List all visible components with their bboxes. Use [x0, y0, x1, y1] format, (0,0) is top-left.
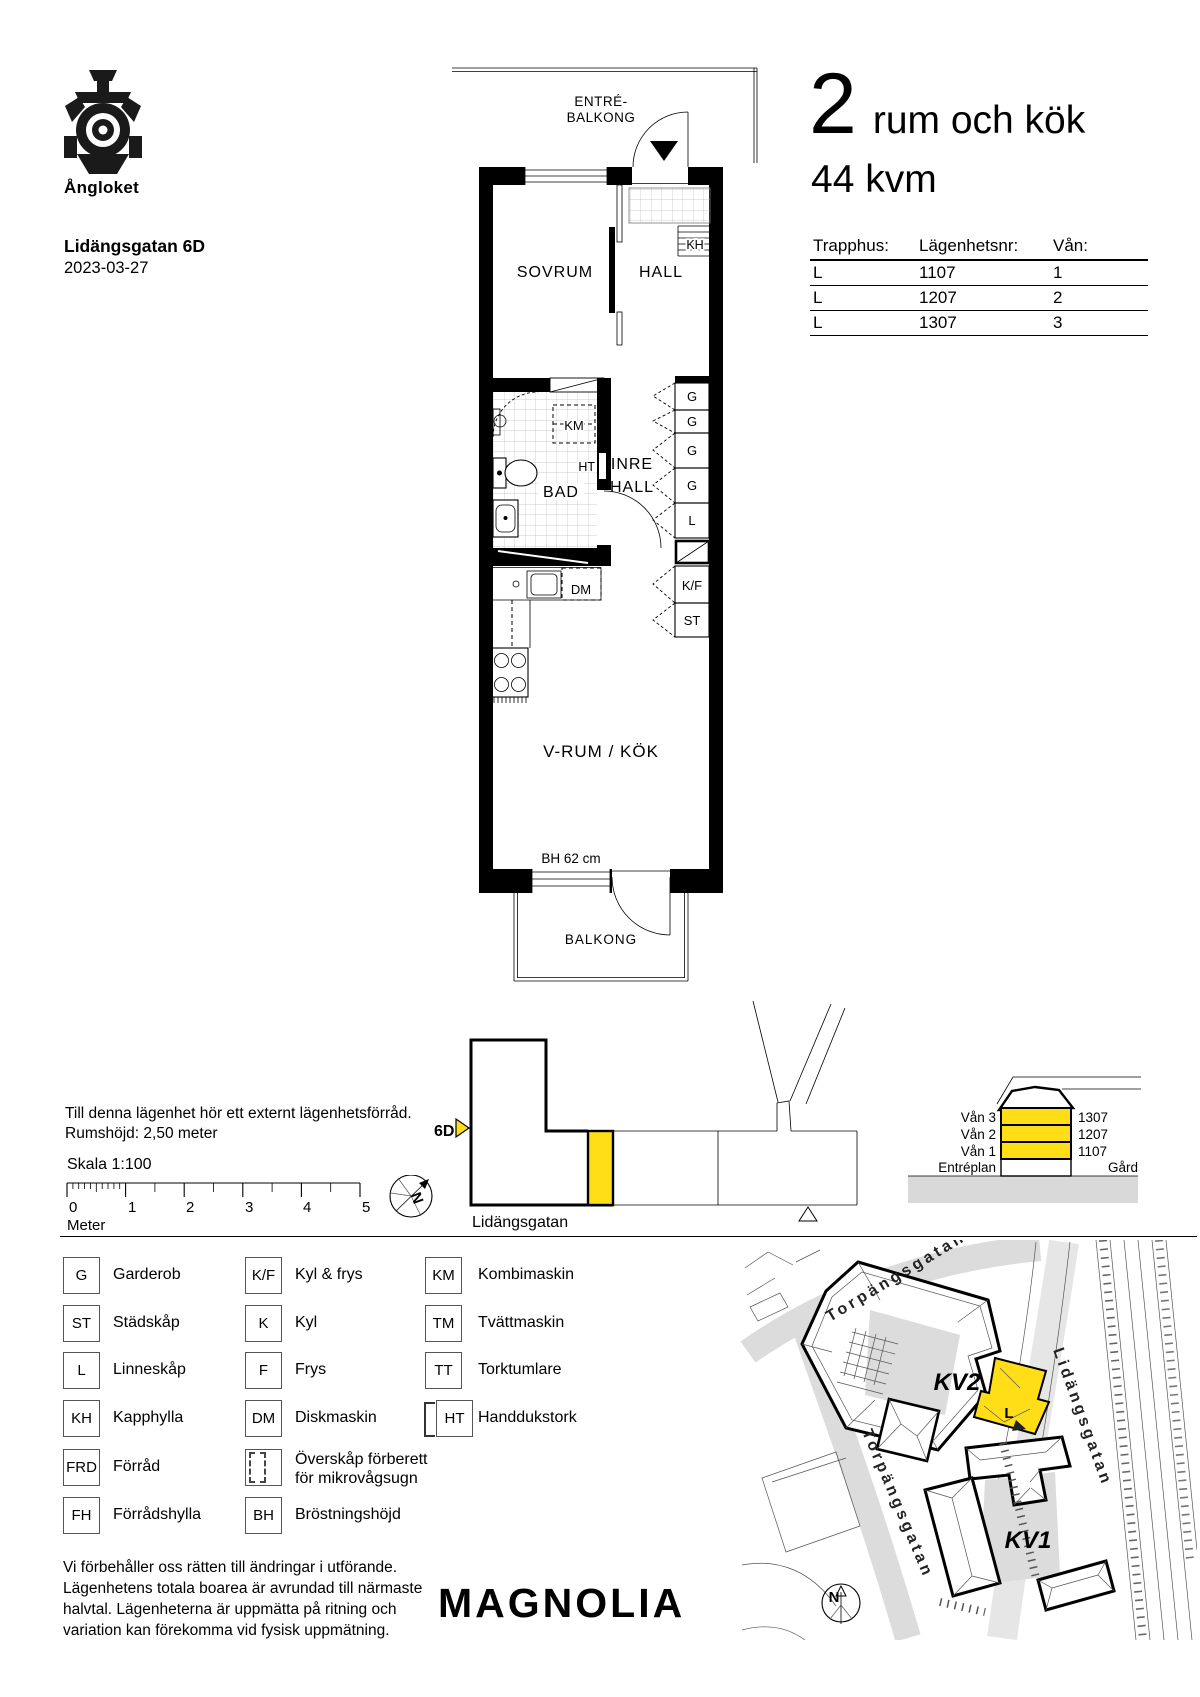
symbol: DM: [252, 1410, 275, 1427]
legend-symbol-box: ST: [63, 1305, 100, 1342]
entrance-triangle-marker: [799, 1207, 817, 1221]
legend-label: Kyl: [295, 1314, 317, 1332]
entrance-level: [1001, 1159, 1071, 1176]
yard-label: Gård: [1108, 1160, 1138, 1175]
balkong-label: BALKONG: [565, 932, 637, 947]
floor-1: [1001, 1142, 1071, 1159]
disclaimer-line: Vi förbehåller oss rätten till ändringar…: [63, 1557, 422, 1578]
kf-label: K/F: [682, 578, 702, 593]
window-sovrum: [525, 167, 607, 185]
closet-run: [653, 376, 709, 637]
entrance-opening: [632, 167, 688, 185]
kitchen-counter: [493, 568, 601, 649]
col-van: Vån:: [1053, 236, 1148, 256]
area-label: 44 kvm: [811, 158, 937, 202]
unit-6d-label: 6D: [434, 1123, 454, 1140]
legend-label: Diskmaskin: [295, 1409, 377, 1427]
floor-2-label: Vån 2: [961, 1127, 996, 1142]
divider-line: [60, 1236, 1197, 1237]
legend-symbol-box: K: [245, 1305, 282, 1342]
north-compass-icon: N: [390, 1175, 432, 1217]
legend-symbol-box: DM: [245, 1400, 282, 1437]
legend-label: Överskåp förberett för mikrovågsugn: [295, 1450, 428, 1488]
legend-label: Frys: [295, 1361, 326, 1379]
table-row: L 1207 2: [810, 286, 1148, 311]
map-compass-n-label: N: [829, 1589, 840, 1606]
symbol: KH: [71, 1410, 92, 1427]
scale-tick-0: 0: [69, 1199, 77, 1216]
legend-label: Tvättmaskin: [478, 1314, 564, 1332]
legend-microwave-cabinet-icon: [245, 1449, 282, 1486]
legend-label: Linneskåp: [113, 1361, 186, 1379]
col-trapphus: Trapphus:: [813, 236, 919, 256]
symbol: FH: [72, 1507, 92, 1524]
legend-symbol-box: F: [245, 1352, 282, 1389]
note-line2: Rumshöjd: 2,50 meter: [65, 1124, 412, 1144]
disclaimer-line: Lägenhetens totala boarea är avrundad ti…: [63, 1578, 422, 1599]
cell-van: 2: [1053, 288, 1148, 308]
balcony-door: [612, 869, 670, 935]
kv1-label: KV1: [1005, 1527, 1052, 1554]
note-line1: Till denna lägenhet hör ett externt läge…: [65, 1104, 412, 1124]
entre-balkong-label-line1: ENTRÉ-: [574, 94, 627, 109]
bathroom-door-swing: [604, 491, 661, 548]
symbol: BH: [253, 1507, 274, 1524]
dm-label: DM: [571, 582, 591, 597]
legend-label: Bröstningshöjd: [295, 1506, 401, 1524]
symbol: TM: [433, 1315, 455, 1332]
floor-plan-drawing: ENTRÉ- BALKONG: [430, 60, 775, 990]
scale-bar: 0 1 2 3 4 5 Meter N: [60, 1175, 450, 1235]
scale-tick-3: 3: [245, 1199, 253, 1216]
legend-symbol-box: HT: [436, 1400, 473, 1437]
closet-label-l: L: [688, 513, 695, 528]
legend-label: Garderob: [113, 1266, 181, 1284]
legend-symbol-box: KH: [63, 1400, 100, 1437]
scale-tick-2: 2: [186, 1199, 194, 1216]
ht-label: HT: [578, 460, 595, 474]
legend-label-line2: för mikrovågsugn: [295, 1469, 428, 1488]
apartments-table: Trapphus: Lägenhetsnr: Vån: L 1107 1 L 1…: [810, 236, 1148, 336]
room-label-inre-hall: HALL: [610, 479, 654, 496]
compass-n-label: N: [407, 1190, 427, 1206]
floor-1-number: 1107: [1078, 1144, 1107, 1159]
address: Lidängsgatan 6D: [64, 236, 205, 257]
apartment-title: 2 rum och kök: [809, 66, 1085, 143]
closet-label-g3: G: [687, 443, 697, 458]
symbol: FRD: [66, 1459, 97, 1476]
highlighted-unit: [588, 1131, 613, 1205]
room-label-hall: HALL: [639, 264, 683, 281]
legend-label: Handdukstork: [478, 1409, 577, 1427]
logo-text: Ångloket: [64, 178, 139, 198]
closet-label-g1: G: [687, 389, 697, 404]
towel-dryer: [598, 452, 607, 480]
legend-label: Förråd: [113, 1458, 160, 1476]
entrance-level-label: Entréplan: [938, 1160, 996, 1175]
symbol: HT: [445, 1410, 465, 1427]
bh-label: BH 62 cm: [541, 851, 600, 866]
km-label: KM: [564, 418, 584, 433]
symbol: G: [76, 1267, 88, 1284]
cell-van: 1: [1053, 263, 1148, 283]
scale-unit: Meter: [67, 1217, 105, 1234]
cell-trapphus: L: [813, 263, 919, 283]
kh-label: KH: [686, 238, 703, 252]
building-outline-thin: [613, 1001, 857, 1205]
disclaimer: Vi förbehåller oss rätten till ändringar…: [63, 1557, 422, 1641]
room-label-inre: INRE: [611, 456, 653, 473]
street-label-lidangsgatan: Lidängsgatan: [472, 1214, 568, 1231]
legend-label: Kyl & frys: [295, 1266, 363, 1284]
scale-tick-1: 1: [128, 1199, 136, 1216]
cell-van: 3: [1053, 313, 1148, 333]
entrance-arrow-icon: [650, 141, 678, 161]
floor-2-number: 1207: [1078, 1127, 1108, 1142]
toilet: [493, 458, 537, 488]
symbol: KM: [432, 1267, 455, 1284]
apartment-notes: Till denna lägenhet hör ett externt läge…: [65, 1104, 412, 1144]
cell-nr: 1207: [919, 288, 1053, 308]
legend-symbol-box: KM: [425, 1257, 462, 1294]
ground: [908, 1176, 1138, 1203]
col-lagenhetsnr: Lägenhetsnr:: [919, 236, 1053, 256]
legend-symbol-box: K/F: [245, 1257, 282, 1294]
legend-symbol-box: BH: [245, 1497, 282, 1534]
floor-3-label: Vån 3: [961, 1110, 996, 1125]
rooms-label: rum och kök: [873, 99, 1085, 143]
symbol: L: [77, 1362, 85, 1379]
floor-3: [1001, 1108, 1071, 1125]
cell-trapphus: L: [813, 288, 919, 308]
closet-label-g4: G: [687, 478, 697, 493]
legend-label: Kapphylla: [113, 1409, 183, 1427]
symbol: ST: [72, 1315, 91, 1332]
table-row: L 1307 3: [810, 311, 1148, 336]
legend-label: Torktumlare: [478, 1361, 562, 1379]
legend-label-line1: Överskåp förberett: [295, 1450, 428, 1469]
legend-label: Kombimaskin: [478, 1266, 574, 1284]
legend-symbol-box: FRD: [63, 1449, 100, 1486]
map-north-compass-icon: N: [822, 1584, 860, 1624]
legend-symbol-box: G: [63, 1257, 100, 1294]
floor-plan-document: Ångloket Lidängsgatan 6D 2023-03-27 2 ru…: [0, 0, 1200, 1697]
stove: [492, 648, 528, 703]
highlighted-building-l: L: [974, 1358, 1049, 1434]
disclaimer-line: halvtal. Lägenheterna är uppmätta på rit…: [63, 1599, 422, 1620]
table-row: L 1107 1: [810, 261, 1148, 286]
site-map: KV2 L KV1 Torpängsgatan Torpängsgatan Li…: [740, 1240, 1197, 1640]
cell-trapphus: L: [813, 313, 919, 333]
kitchen-sink: [527, 571, 561, 598]
closet-label-g2: G: [687, 414, 697, 429]
room-label-sovrum: SOVRUM: [517, 264, 593, 281]
disclaimer-line: variation kan förekomma vid fysisk uppmä…: [63, 1620, 422, 1641]
entre-balkong-label-line2: BALKONG: [567, 110, 636, 125]
legend-symbol-box: TT: [425, 1352, 462, 1389]
kv2-label: KV2: [934, 1369, 981, 1396]
date: 2023-03-27: [64, 259, 205, 278]
floor-2: [1001, 1125, 1071, 1142]
legend-symbol-box: FH: [63, 1497, 100, 1534]
symbol: K/F: [252, 1267, 275, 1284]
cell-nr: 1107: [919, 263, 1053, 283]
entry-tiles: [629, 188, 710, 223]
unit-l-label: L: [1004, 1405, 1013, 1422]
building-elevation: Vån 3 Vån 2 Vån 1 Entréplan 1307 1207 11…: [900, 1058, 1200, 1208]
floor-1-label: Vån 1: [961, 1144, 996, 1159]
scale-title: Skala 1:100: [67, 1156, 152, 1174]
room-label-vrum-kok: V-RUM / KÖK: [543, 742, 659, 761]
roof: [999, 1087, 1073, 1110]
magnolia-logo: MAGNOLIA: [438, 1580, 685, 1627]
entrance-door-swing: [633, 112, 688, 167]
legend-label: Städskåp: [113, 1314, 180, 1332]
towel-dryer-bracket-icon: [424, 1402, 435, 1437]
symbol: F: [259, 1362, 268, 1379]
floor-3-number: 1307: [1078, 1110, 1108, 1125]
st-label: ST: [684, 613, 701, 628]
washbasin: [493, 500, 518, 537]
room-label-bad: BAD: [543, 484, 579, 501]
legend-symbol-box: L: [63, 1352, 100, 1389]
apartments-table-header: Trapphus: Lägenhetsnr: Vån:: [810, 236, 1148, 261]
window-vrum: [532, 869, 610, 893]
scale-tick-5: 5: [362, 1199, 370, 1216]
train-logo-icon: [64, 70, 142, 182]
symbol: K: [258, 1315, 268, 1332]
symbol: TT: [434, 1362, 452, 1379]
legend-label: Förrådshylla: [113, 1506, 201, 1524]
cell-nr: 1307: [919, 313, 1053, 333]
rooms-count: 2: [809, 66, 857, 143]
legend-symbol-box: TM: [425, 1305, 462, 1342]
scale-tick-4: 4: [303, 1199, 311, 1216]
unit-6d-arrow-icon: [456, 1119, 469, 1137]
sliding-door-partition: [609, 185, 622, 345]
